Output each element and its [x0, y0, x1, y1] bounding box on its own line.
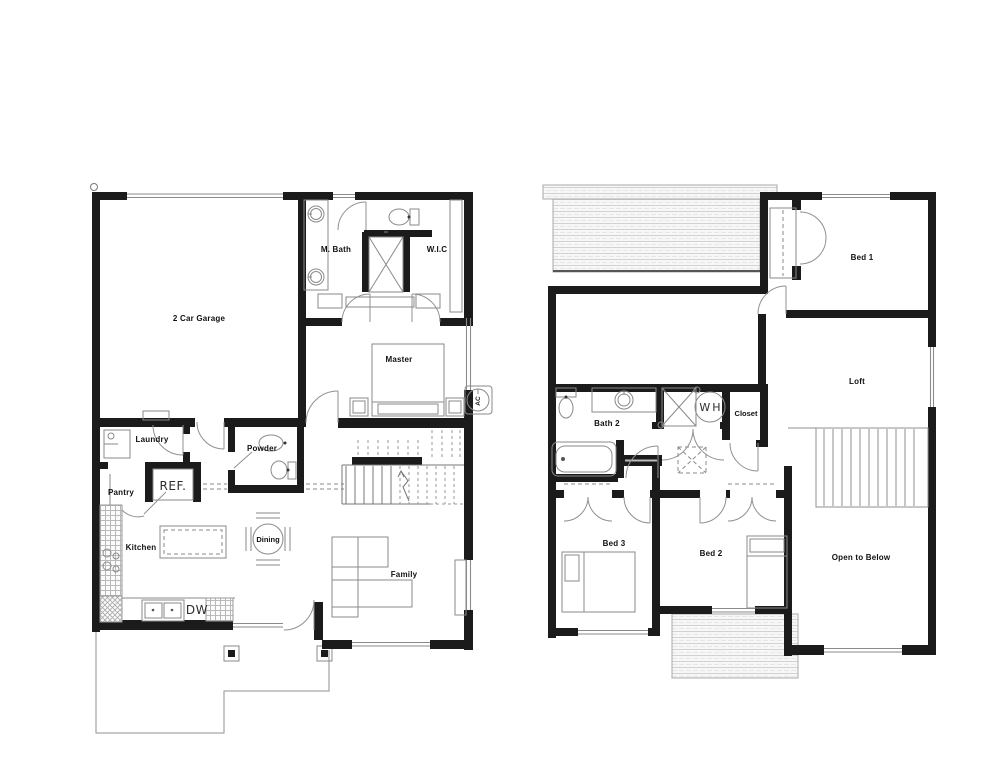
- room-label-bath2: Bath 2: [594, 419, 620, 428]
- first-floor-walls: [92, 192, 473, 650]
- garage-door: [127, 192, 283, 200]
- first-floor-labels: 2 Car Garage M. Bath W.I.C Master Laundr…: [108, 245, 447, 617]
- room-label-bed3: Bed 3: [603, 539, 626, 548]
- first-floor-stairs: [342, 430, 464, 504]
- room-label-open-to-below: Open to Below: [832, 553, 891, 562]
- pillow: [750, 539, 784, 552]
- kitchen-island: [160, 526, 226, 558]
- ac-label: AC: [475, 396, 482, 406]
- bed2-furniture: [747, 536, 787, 608]
- floor-plan-drawing: AC: [0, 0, 1000, 773]
- utility-closet: [658, 387, 725, 473]
- floor-plan-canvas: AC: [0, 0, 1000, 773]
- label-water-heater: WH: [699, 401, 722, 414]
- master-bath-fixtures: [304, 200, 462, 312]
- pillow: [565, 555, 579, 581]
- meter-icon: [91, 184, 98, 191]
- room-label-garage: 2 Car Garage: [173, 314, 226, 323]
- second-floor-plan: Bed 1 Loft Bath 2 WH Closet Bed 3 Bed 2 …: [543, 185, 936, 678]
- toilet-icon: [389, 209, 409, 225]
- first-floor-plan: AC: [91, 184, 493, 734]
- room-label-powder: Powder: [247, 444, 277, 453]
- room-label-closet: Closet: [735, 409, 758, 418]
- kitchen-fixtures: [100, 505, 235, 622]
- tv-console: [455, 560, 466, 615]
- room-label-kitchen: Kitchen: [126, 543, 157, 552]
- wic-shelf: [450, 200, 462, 312]
- stair-direction-arrow: [401, 471, 409, 501]
- room-label-laundry: Laundry: [136, 435, 169, 444]
- label-dishwasher: DW: [186, 603, 208, 617]
- lower-deck: [672, 614, 798, 678]
- room-label-master: Master: [386, 355, 413, 364]
- bifold-door: [800, 212, 826, 238]
- room-label-m-bath: M. Bath: [321, 245, 351, 254]
- label-refrigerator: REF.: [159, 479, 186, 493]
- room-label-wic: W.I.C: [427, 245, 448, 254]
- room-label-bed2: Bed 2: [700, 549, 723, 558]
- room-label-bed1: Bed 1: [851, 253, 874, 262]
- bed3-furniture: [562, 552, 635, 612]
- second-floor-stairs: [788, 428, 928, 507]
- room-label-loft: Loft: [849, 377, 865, 386]
- room-label-family: Family: [391, 570, 418, 579]
- room-label-pantry: Pantry: [108, 488, 134, 497]
- room-label-dining: Dining: [256, 535, 280, 544]
- upper-deck: [543, 185, 777, 272]
- porch-outline: [96, 630, 332, 733]
- toilet-icon: [271, 461, 287, 479]
